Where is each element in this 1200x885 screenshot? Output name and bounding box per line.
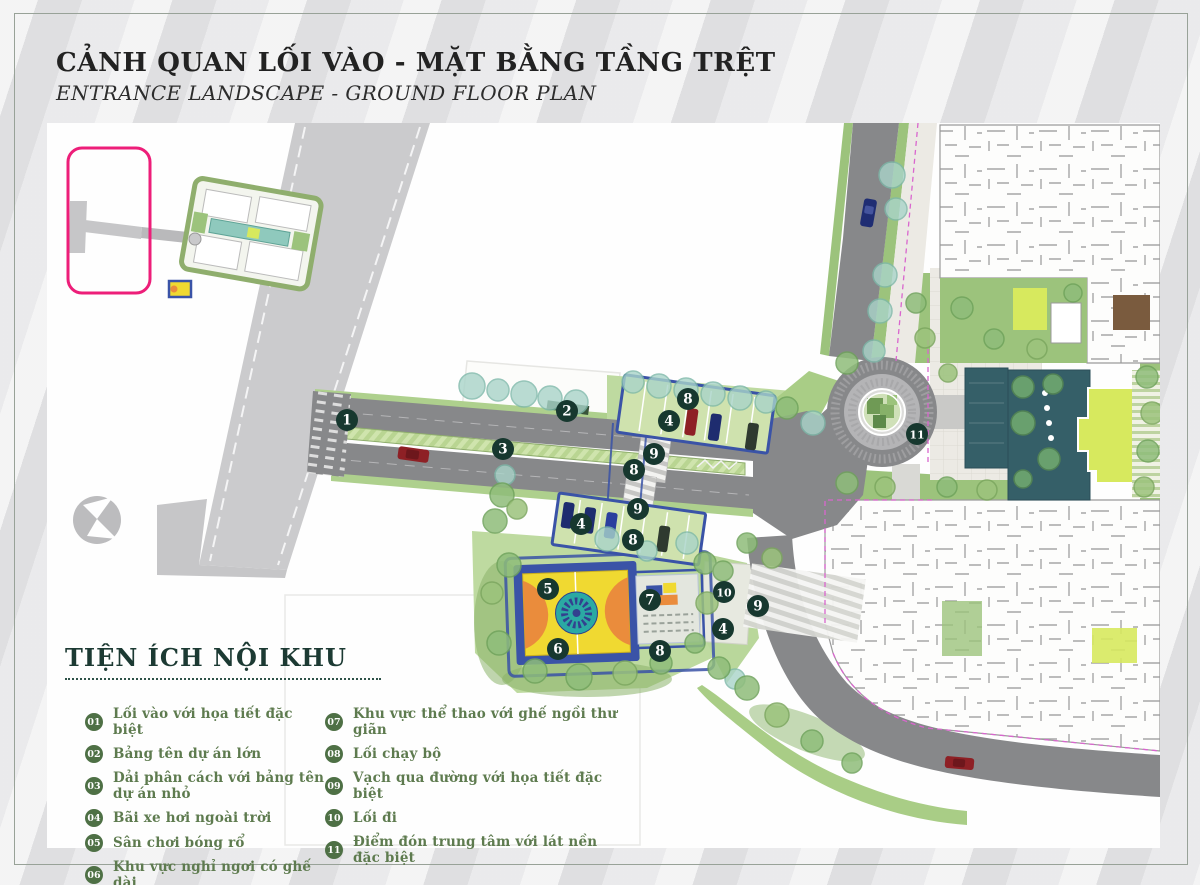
svg-text:8: 8 [628,533,637,549]
legend-item-number: 11 [325,841,343,859]
plan-marker-4: 4 [570,513,592,535]
svg-text:2: 2 [562,404,571,420]
minimap [68,148,322,297]
svg-text:1: 1 [342,413,351,429]
legend-item-07: 07Khu vực thể thao với ghế ngồi thư giãn [325,706,625,738]
page: CẢNH QUAN LỐI VÀO - MẶT BẰNG TẦNG TRỆT E… [0,0,1200,885]
plan-marker-8: 8 [622,529,644,551]
legend-item-02: 02Bảng tên dự án lớn [85,745,325,763]
legend-column-1: 01Lối vào với họa tiết đặc biệt02Bảng tê… [85,706,325,885]
plan-marker-3: 3 [492,438,514,460]
courtyard-lawn [1013,288,1047,330]
legend-item-label: Lối đi [353,810,397,826]
plan-marker-1: 1 [336,409,358,431]
legend-item-number: 07 [325,713,343,731]
header: CẢNH QUAN LỐI VÀO - MẶT BẰNG TẦNG TRỆT E… [56,48,776,105]
pavilion [1051,303,1081,343]
legend-item-11: 11Điểm đón trung tâm với lát nền đặc biệ… [325,834,625,866]
legend-item-04: 04Bãi xe hơi ngoài trời [85,809,325,827]
legend-item-label: Lối chạy bộ [353,746,441,762]
svg-text:5: 5 [543,582,552,598]
svg-text:4: 4 [664,414,673,430]
legend-item-01: 01Lối vào với họa tiết đặc biệt [85,706,325,738]
legend-item-label: Khu vực thể thao với ghế ngồi thư giãn [353,706,625,738]
plan-marker-9: 9 [747,595,769,617]
legend-item-number: 10 [325,809,343,827]
legend-heading: TIỆN ÍCH NỘI KHU [65,643,381,680]
legend-item-10: 10Lối đi [325,809,625,827]
legend-item-08: 08Lối chạy bộ [325,745,625,763]
legend-item-label: Bảng tên dự án lớn [113,746,261,762]
legend-item-number: 08 [325,745,343,763]
legend-column-2: 07Khu vực thể thao với ghế ngồi thư giãn… [325,706,625,885]
legend: TIỆN ÍCH NỘI KHU 01Lối vào với họa tiết … [65,643,725,885]
wood-deck [1113,295,1150,330]
legend-item-label: Điểm đón trung tâm với lát nền đặc biệt [353,834,625,866]
legend-item-number: 09 [325,777,343,795]
legend-item-03: 03Dải phân cách với bảng tên dự án nhỏ [85,770,325,802]
legend-columns: 01Lối vào với họa tiết đặc biệt02Bảng tê… [65,706,725,885]
svg-text:7: 7 [645,593,654,609]
page-subtitle: ENTRANCE LANDSCAPE - GROUND FLOOR PLAN [56,81,776,105]
legend-item-label: Khu vực nghỉ ngơi có ghế dài [113,859,325,885]
plan-marker-9: 9 [643,443,665,465]
svg-text:9: 9 [633,502,642,518]
entry-pattern [307,391,351,477]
legend-item-number: 03 [85,777,103,795]
plan-marker-8: 8 [677,388,699,410]
building-top-right [940,125,1160,363]
legend-item-label: Bãi xe hơi ngoài trời [113,810,272,826]
svg-text:9: 9 [649,447,658,463]
plan-marker-8: 8 [623,459,645,481]
legend-item-label: Vạch qua đường với họa tiết đặc biệt [353,770,625,802]
legend-item-number: 02 [85,745,103,763]
svg-text:3: 3 [498,442,507,458]
legend-item-number: 04 [85,809,103,827]
plan-panel: 12384989485710496811 TIỆN ÍCH NỘI KHU 01… [47,123,1160,848]
svg-text:8: 8 [683,392,692,408]
minimap-complex [180,177,322,290]
plan-marker-4: 4 [712,618,734,640]
legend-item-label: Lối vào với họa tiết đặc biệt [113,706,325,738]
plan-marker-4: 4 [658,410,680,432]
svg-text:10: 10 [716,587,732,600]
plan-marker-2: 2 [556,400,578,422]
car-red-bottom-road [945,756,975,770]
plan-marker-9: 9 [627,498,649,520]
svg-text:4: 4 [718,622,727,638]
legend-item-label: Dải phân cách với bảng tên dự án nhỏ [113,770,325,802]
legend-item-number: 06 [85,866,103,884]
plan-marker-5: 5 [537,578,559,600]
lawn [1078,388,1138,483]
plan-marker-10: 10 [713,581,735,603]
legend-item-number: 01 [85,713,103,731]
legend-item-label: Sân chơi bóng rổ [113,835,245,851]
svg-text:11: 11 [909,429,924,442]
legend-item-09: 09Vạch qua đường với họa tiết đặc biệt [325,770,625,802]
legend-item-06: 06Khu vực nghỉ ngơi có ghế dài [85,859,325,885]
plan-marker-7: 7 [639,589,661,611]
svg-text:8: 8 [629,463,638,479]
svg-text:9: 9 [753,599,762,615]
svg-text:4: 4 [576,517,585,533]
legend-item-number: 05 [85,834,103,852]
plan-marker-11: 11 [906,423,928,445]
page-title: CẢNH QUAN LỐI VÀO - MẶT BẰNG TẦNG TRỆT [56,48,776,78]
logo-watermark-icon [73,496,121,544]
legend-item-05: 05Sân chơi bóng rổ [85,834,325,852]
